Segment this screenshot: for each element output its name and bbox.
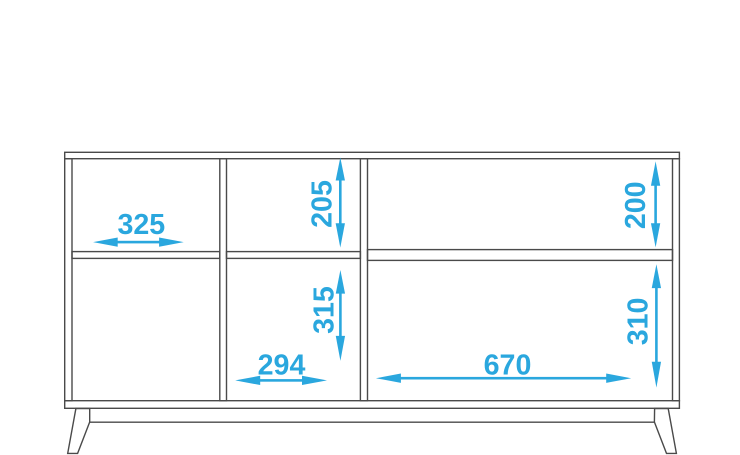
svg-text:310: 310	[622, 298, 654, 346]
svg-text:294: 294	[258, 349, 306, 381]
svg-text:205: 205	[307, 180, 339, 228]
svg-text:670: 670	[484, 350, 532, 382]
svg-text:315: 315	[308, 286, 340, 334]
svg-text:325: 325	[117, 209, 165, 241]
svg-text:200: 200	[620, 181, 652, 229]
